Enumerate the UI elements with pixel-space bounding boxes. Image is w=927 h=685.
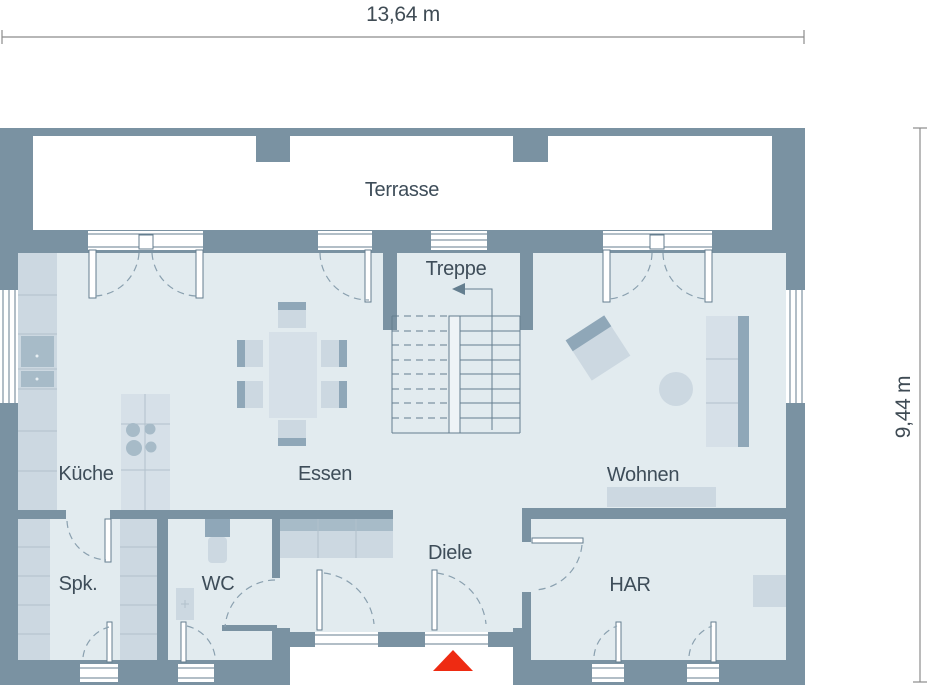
room-label-wohnen: Wohnen bbox=[607, 464, 679, 486]
stair-wall-right bbox=[520, 253, 533, 330]
room-label-wc: WC bbox=[202, 573, 235, 595]
room-label-spk: Spk. bbox=[59, 573, 98, 595]
stair-wall-left bbox=[383, 253, 397, 330]
stair-spine bbox=[449, 316, 460, 433]
room-label-terrasse: Terrasse bbox=[365, 179, 439, 201]
window-right bbox=[786, 290, 805, 403]
door-handle bbox=[650, 235, 664, 249]
toilet-bowl bbox=[208, 537, 227, 563]
window-left bbox=[0, 290, 18, 403]
pantry-shelf-right bbox=[120, 519, 157, 660]
coffee-table bbox=[659, 372, 693, 406]
toilet-tank bbox=[205, 519, 230, 537]
pantry-shelf-left bbox=[18, 519, 50, 660]
room-label-diele: Diele bbox=[428, 542, 472, 564]
dimension-top: 13,64 m bbox=[2, 3, 804, 44]
sideboard bbox=[607, 487, 716, 507]
door-handle bbox=[139, 235, 153, 249]
floorplan-canvas: 13,64 m 9,44 m bbox=[0, 0, 927, 685]
floorplan-svg: 13,64 m 9,44 m bbox=[0, 0, 927, 685]
room-label-essen: Essen bbox=[298, 463, 352, 485]
har-equipment bbox=[753, 575, 786, 607]
dimension-height-label: 9,44 m bbox=[892, 376, 915, 438]
hallway bbox=[280, 519, 393, 558]
terrace-post-left bbox=[256, 128, 290, 162]
room-label-har: HAR bbox=[609, 574, 650, 596]
porch-slab bbox=[290, 647, 513, 685]
room-label-treppe: Treppe bbox=[426, 258, 487, 280]
dimension-right: 9,44 m bbox=[892, 128, 927, 682]
oven bbox=[21, 336, 54, 367]
wardrobe bbox=[280, 519, 393, 558]
sofa bbox=[706, 316, 749, 447]
terrace-post-right bbox=[513, 128, 548, 162]
room-label-kueche: Küche bbox=[58, 463, 113, 485]
dining-table bbox=[269, 332, 317, 418]
dimension-width-label: 13,64 m bbox=[366, 3, 440, 26]
window-above-stairs bbox=[431, 231, 487, 250]
